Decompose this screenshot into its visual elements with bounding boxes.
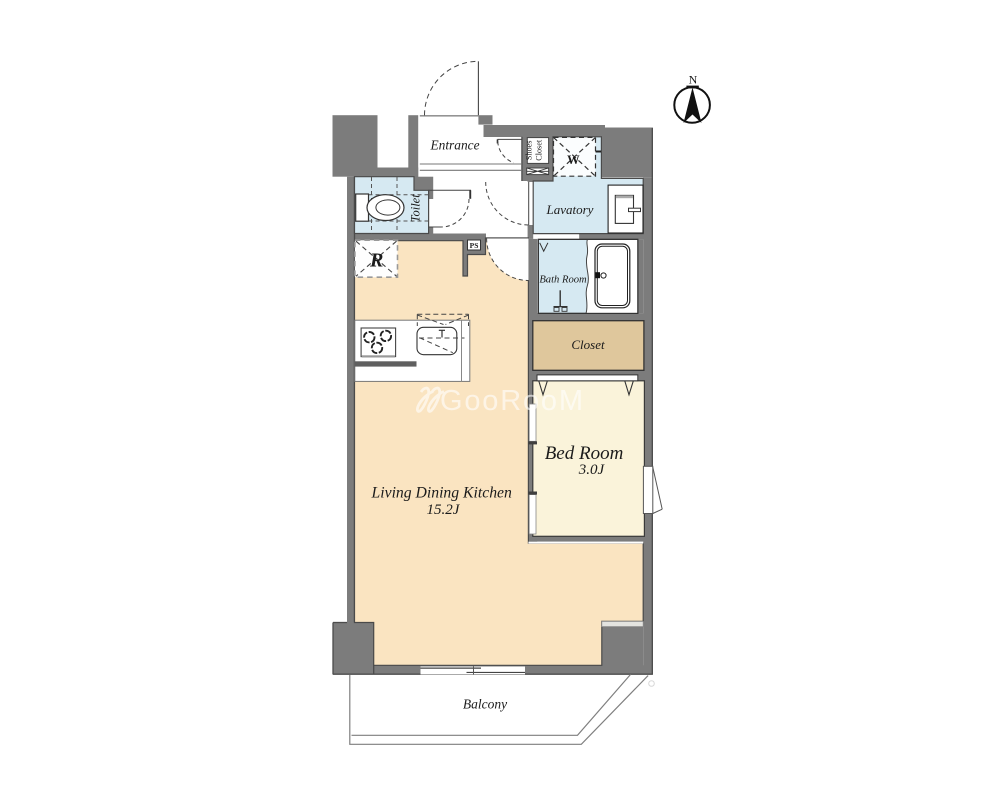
svg-text:3.0J: 3.0J <box>578 462 606 478</box>
svg-text:Bath Room: Bath Room <box>539 275 587 286</box>
svg-text:R: R <box>369 250 383 272</box>
svg-text:Toilet: Toilet <box>409 194 423 223</box>
svg-text:N: N <box>689 73 698 87</box>
svg-text:Lavatory: Lavatory <box>546 202 594 217</box>
svg-text:PS: PS <box>470 241 479 250</box>
svg-text:15.2J: 15.2J <box>427 502 461 518</box>
svg-text:Bed Room: Bed Room <box>545 443 624 464</box>
svg-text:Balcony: Balcony <box>463 697 507 712</box>
svg-text:Closet: Closet <box>571 337 605 352</box>
svg-text:Entrance: Entrance <box>429 138 479 153</box>
svg-text:GooRooM: GooRooM <box>440 385 585 417</box>
svg-text:Shoes: Shoes <box>525 141 534 161</box>
svg-text:W: W <box>567 153 580 167</box>
svg-text:Closet: Closet <box>535 139 544 161</box>
svg-text:Living Dining Kitchen: Living Dining Kitchen <box>371 484 512 501</box>
